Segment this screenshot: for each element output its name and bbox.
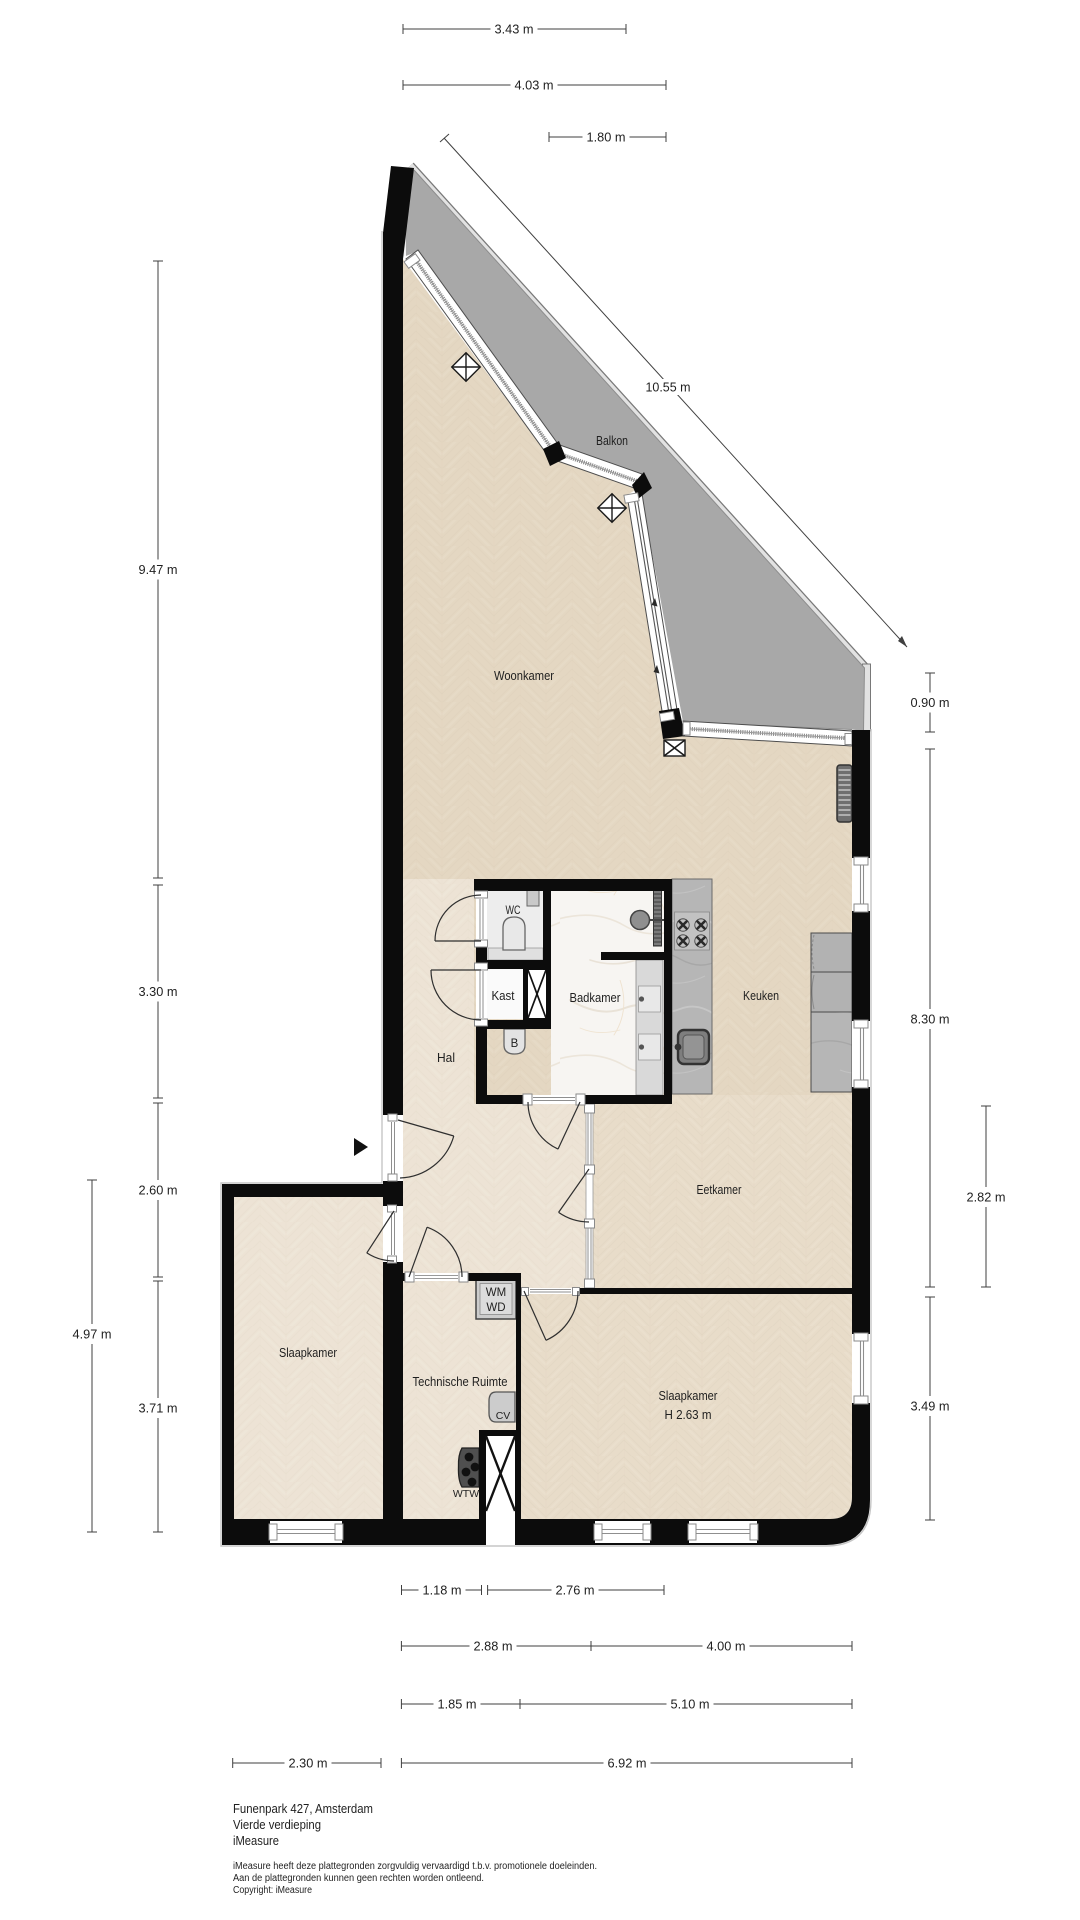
svg-text:Badkamer: Badkamer bbox=[570, 990, 622, 1005]
svg-text:8.30 m: 8.30 m bbox=[911, 1012, 950, 1027]
svg-text:10.55 m: 10.55 m bbox=[646, 380, 691, 395]
svg-text:2.88 m: 2.88 m bbox=[474, 1639, 513, 1654]
svg-text:Balkon: Balkon bbox=[596, 433, 628, 448]
svg-text:Slaapkamer: Slaapkamer bbox=[279, 1345, 338, 1360]
svg-text:Hal: Hal bbox=[437, 1050, 455, 1065]
svg-text:2.76 m: 2.76 m bbox=[556, 1583, 595, 1598]
svg-text:0.90 m: 0.90 m bbox=[911, 695, 950, 710]
svg-text:2.82 m: 2.82 m bbox=[967, 1190, 1006, 1205]
svg-text:2.60 m: 2.60 m bbox=[139, 1183, 178, 1198]
svg-text:4.03 m: 4.03 m bbox=[515, 78, 554, 93]
svg-text:CV: CV bbox=[496, 1410, 511, 1422]
svg-text:H 2.63 m: H 2.63 m bbox=[665, 1407, 712, 1422]
svg-text:WC: WC bbox=[506, 905, 521, 917]
svg-text:2.30 m: 2.30 m bbox=[289, 1756, 328, 1771]
svg-text:9.47 m: 9.47 m bbox=[139, 562, 178, 577]
svg-text:6.92 m: 6.92 m bbox=[608, 1756, 647, 1771]
svg-text:Woonkamer: Woonkamer bbox=[494, 668, 555, 683]
svg-text:Copyright: iMeasure: Copyright: iMeasure bbox=[233, 1885, 312, 1896]
svg-text:1.18 m: 1.18 m bbox=[423, 1583, 462, 1598]
svg-text:1.85 m: 1.85 m bbox=[438, 1697, 477, 1712]
svg-text:1.80 m: 1.80 m bbox=[587, 130, 626, 145]
svg-text:4.00 m: 4.00 m bbox=[707, 1639, 746, 1654]
svg-text:Technische Ruimte: Technische Ruimte bbox=[413, 1374, 508, 1389]
svg-text:Aan de plattegronden kunnen ge: Aan de plattegronden kunnen geen rechten… bbox=[233, 1873, 484, 1884]
svg-text:B: B bbox=[511, 1038, 519, 1050]
svg-text:Slaapkamer: Slaapkamer bbox=[659, 1388, 719, 1403]
svg-text:Kast: Kast bbox=[492, 989, 515, 1003]
svg-text:3.43 m: 3.43 m bbox=[495, 22, 534, 37]
svg-text:Vierde verdieping: Vierde verdieping bbox=[233, 1818, 321, 1832]
svg-text:Eetkamer: Eetkamer bbox=[697, 1182, 743, 1197]
svg-text:3.71 m: 3.71 m bbox=[139, 1401, 178, 1416]
svg-text:iMeasure: iMeasure bbox=[233, 1834, 279, 1848]
svg-text:3.30 m: 3.30 m bbox=[139, 984, 178, 999]
svg-text:WTW: WTW bbox=[453, 1488, 479, 1500]
svg-text:WD: WD bbox=[486, 1302, 505, 1314]
svg-text:5.10 m: 5.10 m bbox=[671, 1697, 710, 1712]
svg-text:WM: WM bbox=[486, 1287, 506, 1299]
svg-text:Funenpark 427, Amsterdam: Funenpark 427, Amsterdam bbox=[233, 1802, 373, 1816]
svg-text:3.49 m: 3.49 m bbox=[911, 1399, 950, 1414]
svg-text:Keuken: Keuken bbox=[743, 988, 779, 1003]
svg-text:4.97 m: 4.97 m bbox=[73, 1327, 112, 1342]
svg-text:iMeasure heeft deze plattegron: iMeasure heeft deze plattegronden zorgvu… bbox=[233, 1861, 597, 1872]
